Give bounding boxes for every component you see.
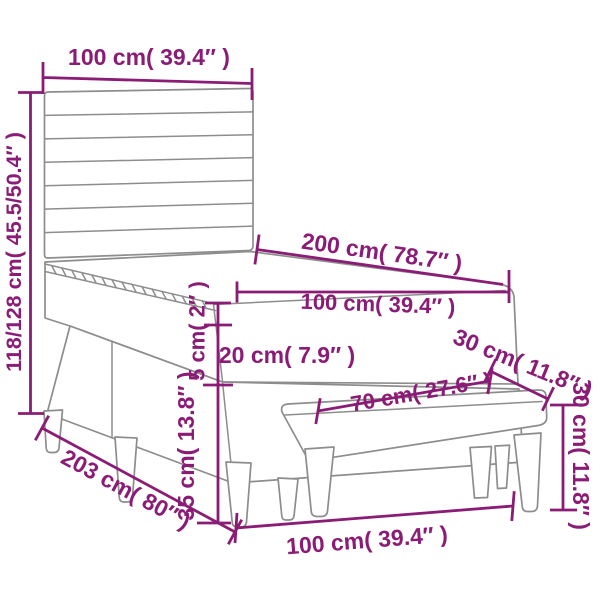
bench-leg-back-left [470,447,492,499]
label-mattress-thickness: 20 cm( 7.9″ ) [219,342,355,368]
label-headboard-width: 100 cm( 39.4″ ) [68,44,230,70]
bench-leg-front-right [514,433,541,512]
label-overall-width: 100 cm( 39.4″ ) [285,521,448,560]
label-bench-height: 30 cm( 11.8″ ) [568,382,594,530]
bench-leg-front-left [305,447,334,517]
label-overall-height: 118/128 cm( 45.5/50.4″ ) [2,132,26,372]
label-topper-thickness: 5 cm( 2″ ) [185,281,210,381]
diagram-canvas: 100 cm( 39.4″ ) 118/128 cm( 45.5/50.4″ )… [0,0,600,600]
bed-leg [278,478,298,520]
label-base-height: 35 cm( 13.8″ ) [173,371,199,520]
dimension-diagram: 100 cm( 39.4″ ) 118/128 cm( 45.5/50.4″ )… [0,0,600,600]
bench-leg-back-right [495,445,510,488]
bed-leg [226,462,251,527]
